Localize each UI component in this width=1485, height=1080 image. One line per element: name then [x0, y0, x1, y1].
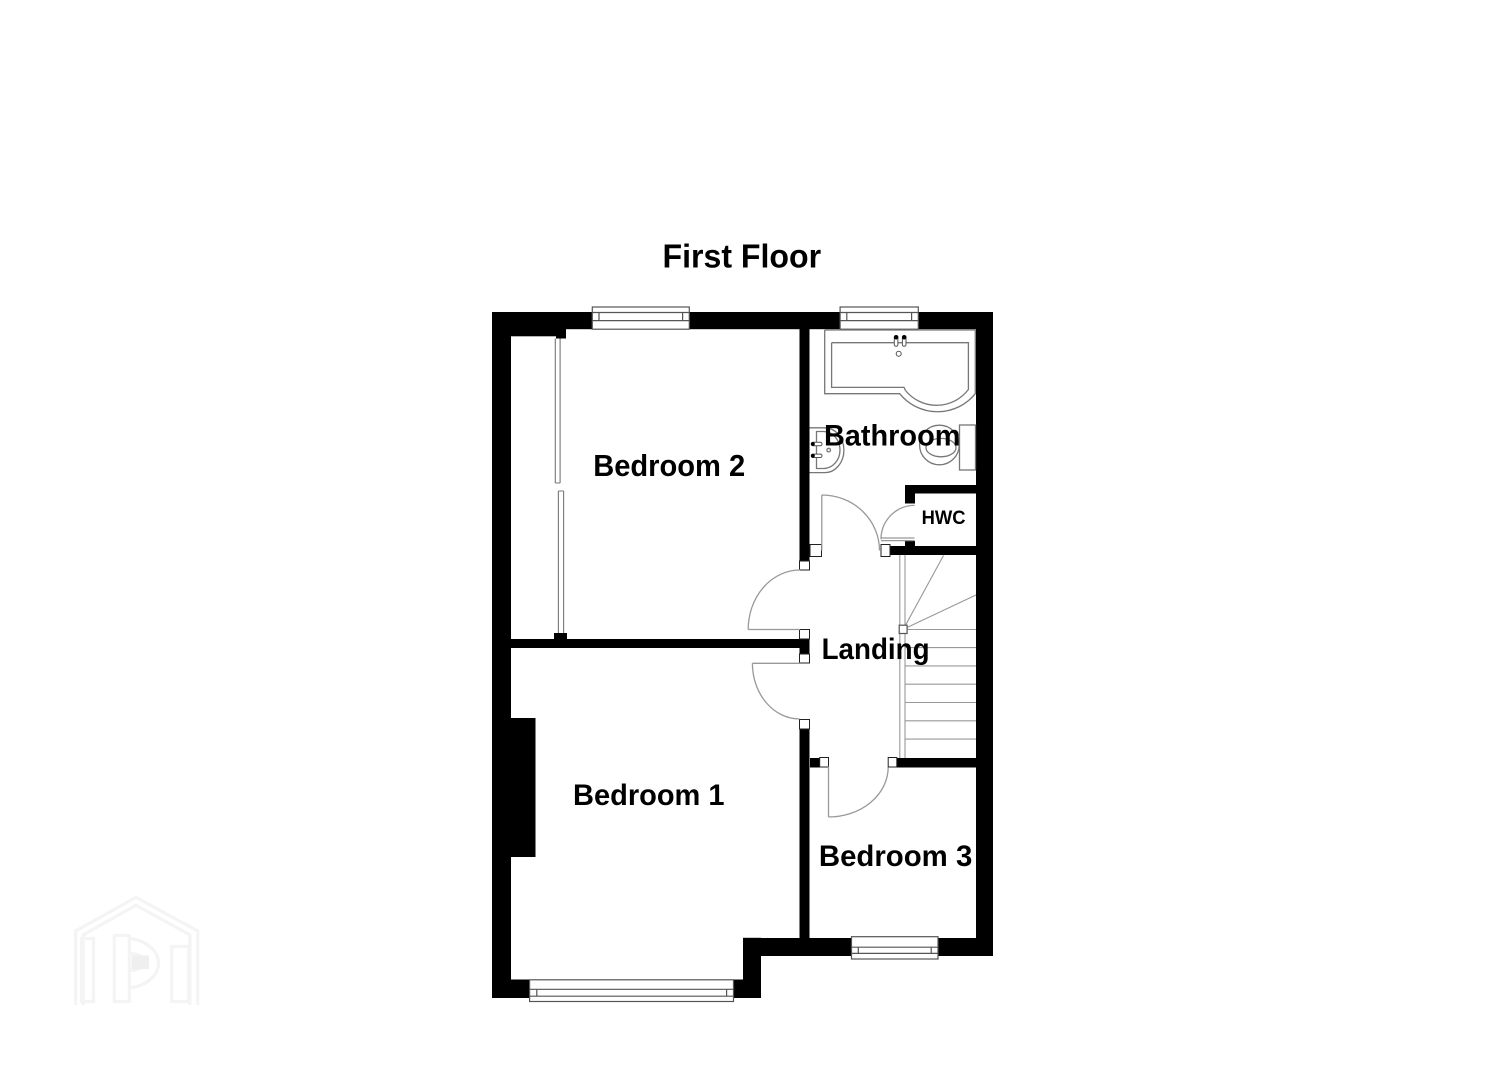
svg-text:Bedroom 3: Bedroom 3 [819, 840, 972, 873]
svg-text:Bedroom 2: Bedroom 2 [593, 449, 745, 483]
svg-text:Landing: Landing [822, 633, 930, 666]
svg-text:Bedroom 1: Bedroom 1 [573, 779, 725, 812]
svg-text:First Floor: First Floor [663, 237, 822, 274]
svg-text:Bathroom: Bathroom [824, 420, 961, 453]
svg-text:HWC: HWC [922, 508, 966, 529]
